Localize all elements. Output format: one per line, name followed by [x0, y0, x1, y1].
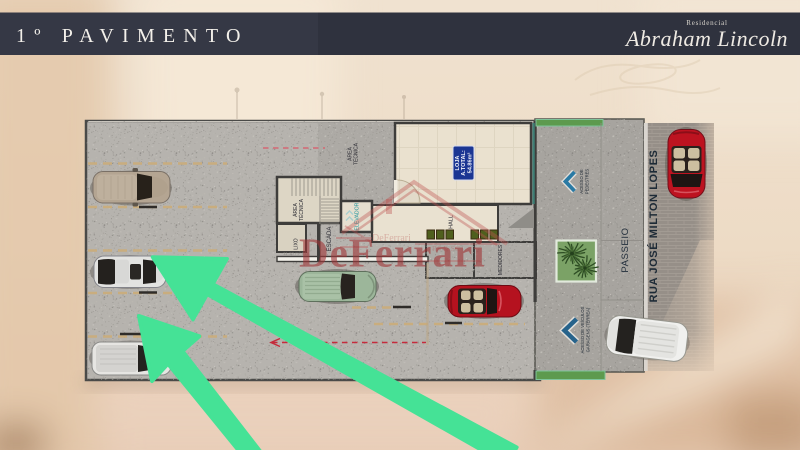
svg-text:PASSEIO: PASSEIO [620, 227, 631, 272]
svg-text:PEDESTRES: PEDESTRES [584, 169, 589, 195]
svg-text:ÁREA: ÁREA [292, 203, 299, 217]
svg-text:1º PAVIMENTO: 1º PAVIMENTO [16, 25, 249, 47]
svg-text:ACESSO DE: ACESSO DE [579, 169, 584, 194]
svg-text:DeFerrari: DeFerrari [299, 230, 486, 276]
svg-text:ÁREA: ÁREA [347, 147, 354, 161]
svg-text:TÉCNICA: TÉCNICA [353, 142, 360, 165]
svg-text:A.TOTAL:: A.TOTAL: [461, 150, 467, 176]
svg-text:TÉCNICA: TÉCNICA [298, 198, 305, 221]
svg-text:MEDIDORES: MEDIDORES [498, 244, 504, 275]
svg-text:ACESSO DE VEÍCULOS: ACESSO DE VEÍCULOS [580, 306, 585, 353]
svg-text:LOJA: LOJA [455, 156, 461, 171]
svg-text:RUA JOSÉ MILTON LOPES: RUA JOSÉ MILTON LOPES [647, 150, 660, 303]
svg-text:GARAGENS (TÉRREA): GARAGENS (TÉRREA) [585, 307, 590, 352]
svg-text:54.86m²: 54.86m² [467, 152, 474, 173]
svg-text:Abraham Lincoln: Abraham Lincoln [624, 26, 788, 51]
svg-text:ELEVADOR: ELEVADOR [355, 202, 361, 230]
